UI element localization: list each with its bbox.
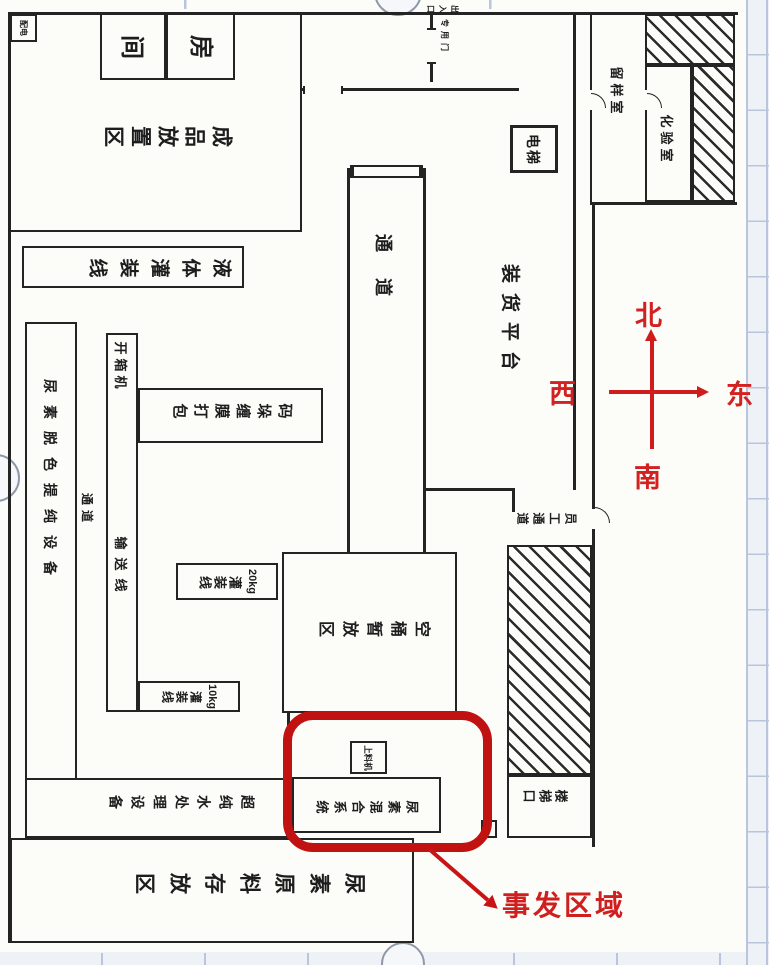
compass-east-arrowhead (697, 386, 709, 398)
door-gap (427, 28, 436, 64)
compass-west-label: 西 (549, 372, 576, 411)
grid-line (746, 0, 748, 965)
label-sample-room: 留样室 (606, 60, 628, 124)
label-laboratory: 化验室 (656, 108, 678, 172)
label-conveyor-line: 输送线 (110, 536, 132, 600)
compass-west-east-line (609, 390, 699, 394)
hatched-area-top (645, 14, 735, 65)
compass-north-south-line (650, 341, 654, 449)
label-special-door: 专用门 (438, 14, 451, 60)
label-palletizing: 码垛缠膜打包 (158, 396, 302, 424)
wall-segment (573, 12, 576, 490)
door-gap (303, 86, 343, 94)
incident-highlight-box (283, 711, 492, 852)
wall-segment (592, 205, 595, 509)
hatched-stairs (507, 545, 592, 775)
spreadsheet-grid-top (0, 0, 746, 9)
label-corridor-main: 通道 (370, 232, 396, 324)
compass-south-label: 南 (634, 456, 661, 495)
label-unboxing-machine: 开箱机 (110, 334, 132, 400)
label-empty-barrel: 空桶暂放区 (300, 612, 442, 640)
label-urea-decolor: 尿素脱色提纯设备 (38, 375, 62, 591)
wall-segment (592, 529, 595, 847)
label-elevator: 电梯 (521, 131, 545, 169)
spreadsheet-grid-bottom (0, 953, 746, 965)
label-loading-platform: 装货平台 (496, 258, 524, 386)
label-entrance-exit: 出入口 (414, 2, 468, 15)
hatched-area-right (692, 65, 735, 202)
label-water-treatment: 超纯水处理设备 (90, 789, 266, 815)
label-room-fang: 房 (177, 24, 223, 70)
compass-east-label: 东 (726, 373, 753, 412)
wall-segment (425, 488, 515, 491)
label-10kg-filling-line: 10kg 灌装线 (140, 683, 238, 710)
label-finished-goods: 成品放置区 (92, 118, 240, 152)
grid-line (766, 0, 768, 965)
label-stair-exit: 楼梯口 (512, 784, 576, 806)
wall-segment (347, 168, 350, 552)
double-door (350, 165, 423, 178)
wall-segment (423, 168, 426, 552)
label-staff-passage: 员工通道 (504, 506, 586, 530)
label-20kg-filling-line: 20kg 灌装线 (178, 565, 276, 598)
label-power-box: 配电 (12, 16, 34, 40)
floor-plan-scan: 配电 间 房 成品放置区 液体灌装线 尿素脱色提纯设备 通道 开箱机 输送线 码… (0, 0, 769, 965)
label-liquid-filling-line: 液体灌装线 (72, 249, 238, 283)
label-urea-storage: 尿素原料存放区 (120, 862, 368, 902)
label-corridor-small: 通道 (77, 492, 97, 528)
compass-north-label: 北 (635, 294, 662, 333)
incident-area-label: 事发区域 (502, 884, 626, 924)
label-room-jian: 间 (108, 24, 154, 70)
